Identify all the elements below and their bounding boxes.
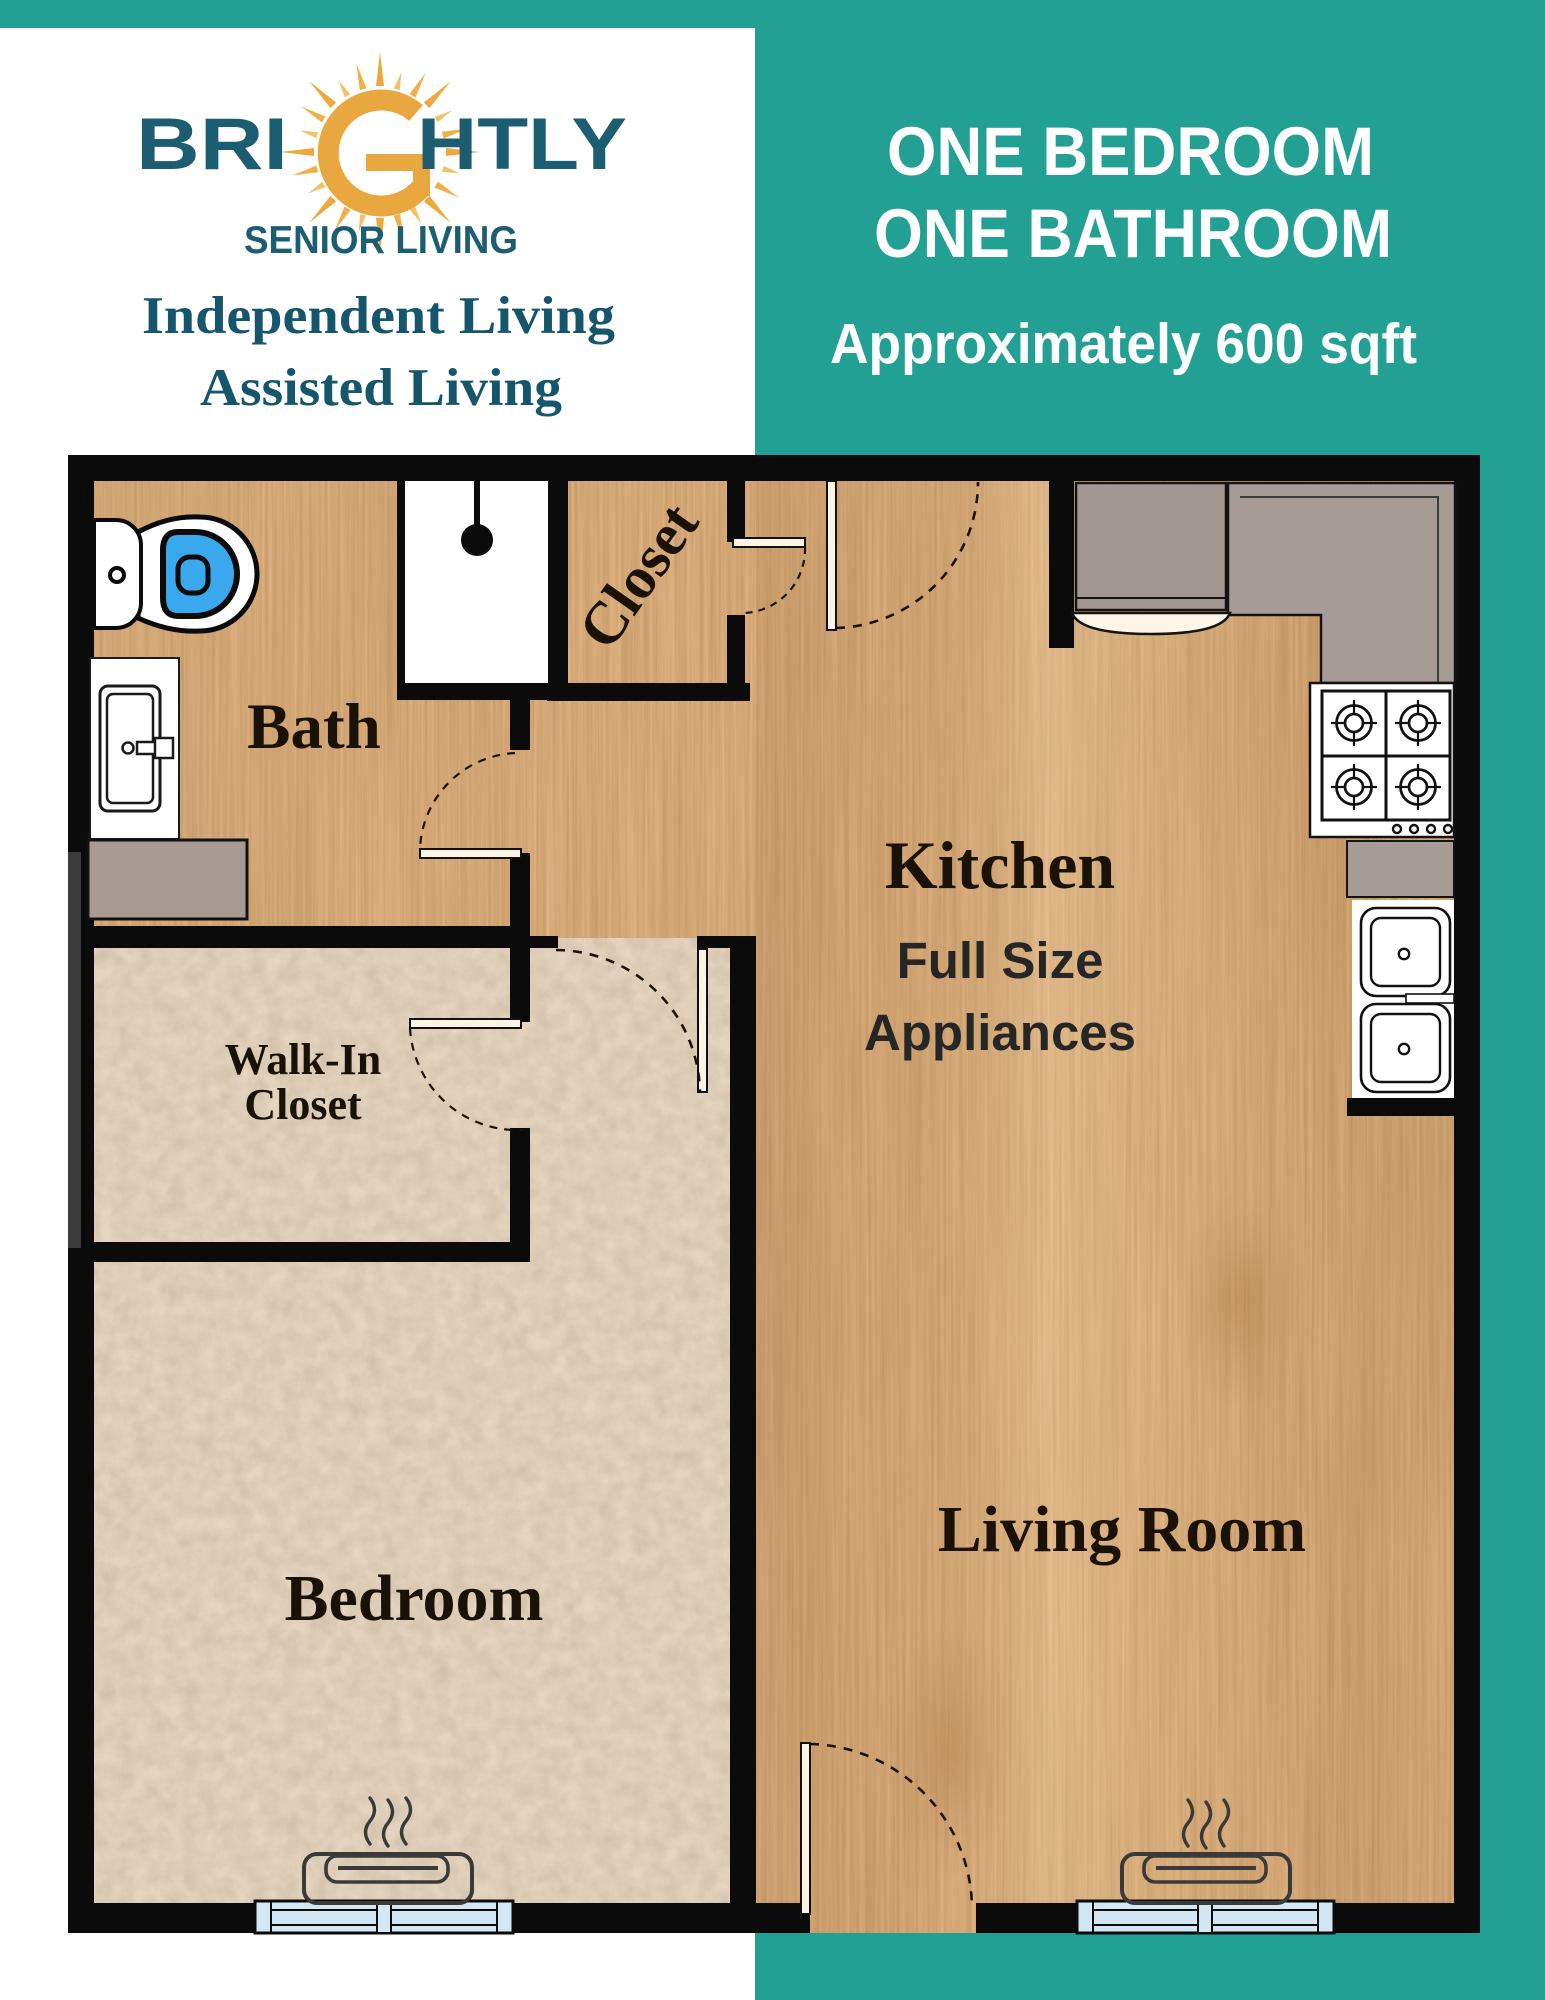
svg-text:Assisted Living: Assisted Living	[200, 359, 562, 417]
svg-text:Kitchen: Kitchen	[885, 827, 1115, 903]
svg-text:BRI: BRI	[136, 104, 288, 185]
svg-text:Independent Living: Independent Living	[142, 287, 615, 345]
svg-text:Living Room: Living Room	[938, 1493, 1307, 1566]
svg-text:Full Size: Full Size	[897, 932, 1104, 989]
svg-text:Walk-In: Walk-In	[225, 1035, 382, 1084]
svg-text:SENIOR LIVING: SENIOR LIVING	[244, 219, 518, 262]
svg-text:HTLY: HTLY	[417, 104, 627, 185]
svg-text:Bedroom: Bedroom	[284, 1562, 543, 1635]
svg-text:Closet: Closet	[244, 1080, 362, 1129]
svg-text:ONE BEDROOM: ONE BEDROOM	[887, 113, 1374, 190]
svg-text:Approximately 600 sqft: Approximately 600 sqft	[830, 312, 1417, 376]
svg-text:ONE BATHROOM: ONE BATHROOM	[874, 195, 1392, 272]
svg-text:Bath: Bath	[247, 691, 381, 763]
svg-text:Appliances: Appliances	[864, 1004, 1136, 1061]
